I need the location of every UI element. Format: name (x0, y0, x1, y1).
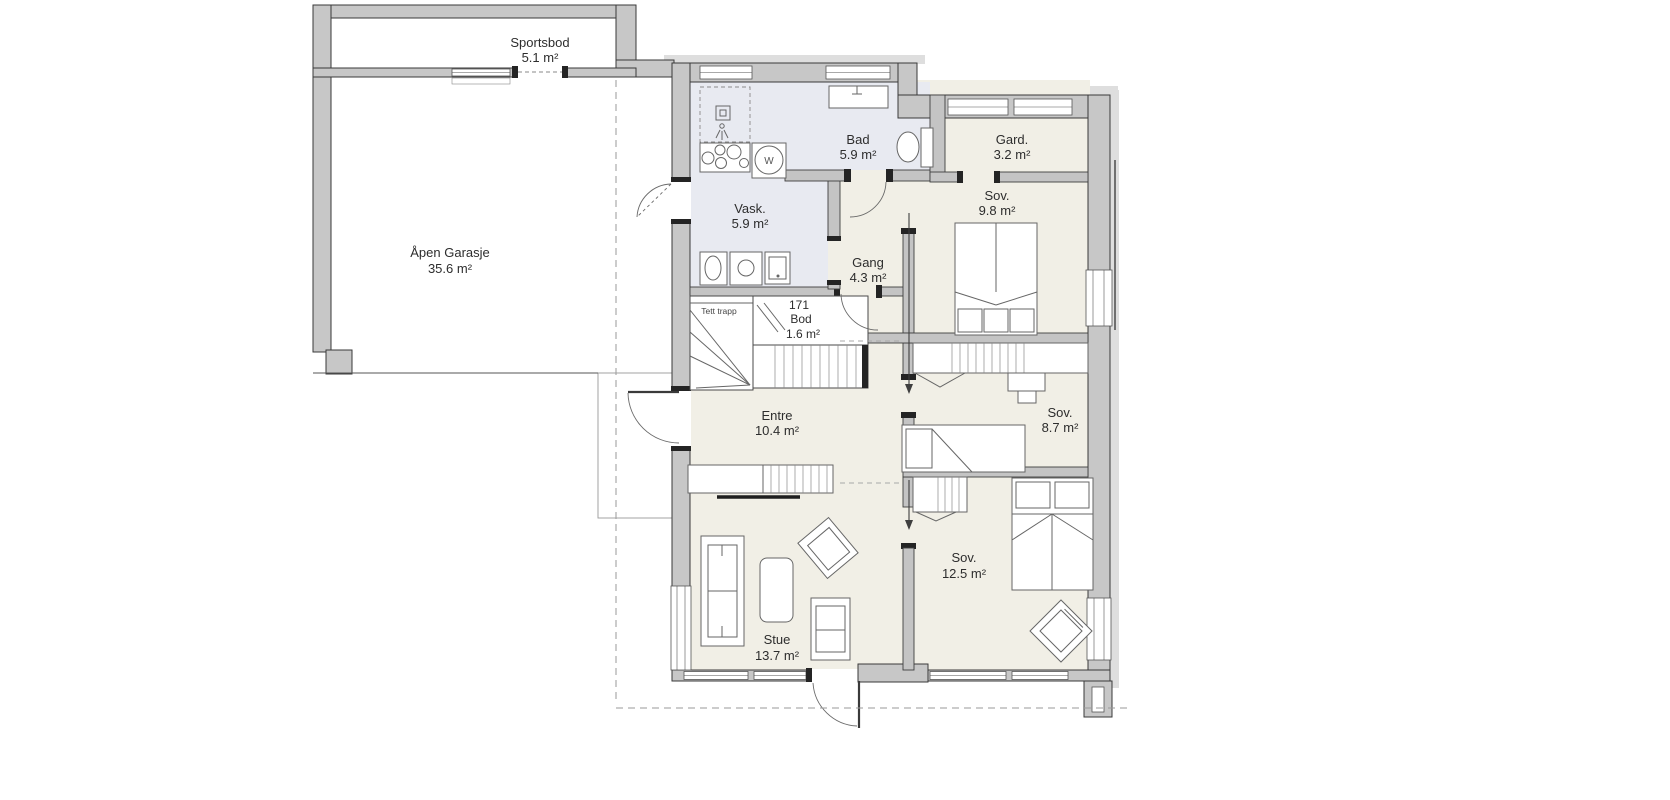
svg-text:5.9 m²: 5.9 m² (732, 216, 770, 231)
garage-corner-pillar (326, 350, 352, 374)
svg-text:Entre: Entre (761, 408, 792, 423)
garage-west-wall (313, 77, 331, 352)
sportsbod-west-wall (313, 5, 331, 77)
room-label-gang: Gang 4.3 m² (850, 255, 888, 285)
svg-text:12.5 m²: 12.5 m² (942, 566, 987, 581)
sofa-icon (701, 536, 744, 646)
svg-text:Stue: Stue (764, 632, 791, 647)
south-wall-pier (858, 664, 928, 682)
desk-icon (1008, 373, 1045, 391)
garage-workbench (452, 78, 510, 84)
west-wall (672, 63, 690, 672)
svg-text:Bad: Bad (846, 132, 869, 147)
divider-wall-lower (903, 548, 914, 670)
window-sov1-east (1086, 270, 1112, 326)
garage-door-opening (671, 181, 691, 220)
svg-text:Sov.: Sov. (1047, 405, 1072, 420)
double-bed-sov1-icon (955, 223, 1037, 335)
svg-text:Åpen Garasje: Åpen Garasje (410, 245, 490, 260)
coffee-table-icon (760, 558, 793, 622)
double-bed-sov3-icon (1012, 478, 1093, 590)
svg-text:4.3 m²: 4.3 m² (850, 270, 888, 285)
sportsbod-door-opening (516, 67, 564, 78)
floorplan-page: W (0, 0, 1670, 800)
floor-sportsbod (331, 18, 616, 68)
exterior-door-opening (808, 669, 860, 682)
single-bed-sov2-icon (902, 425, 1025, 472)
sportsbod-north-wall (313, 5, 636, 18)
svg-text:3.2 m²: 3.2 m² (994, 147, 1032, 162)
svg-text:Sov.: Sov. (951, 550, 976, 565)
entrance-porch (598, 373, 672, 518)
stair-run (753, 345, 868, 388)
floor-garage (331, 77, 616, 372)
gard-south-wall (930, 172, 960, 182)
sink-vask-icon (730, 252, 762, 285)
exterior-door-stue (813, 681, 859, 728)
svg-text:13.7 m²: 13.7 m² (755, 648, 800, 663)
svg-text:171: 171 (789, 298, 809, 312)
svg-text:9.8 m²: 9.8 m² (979, 203, 1017, 218)
front-door-opening (671, 390, 691, 447)
entre-cabinet (688, 465, 833, 493)
svg-text:Gang: Gang (852, 255, 884, 270)
vask-east-wall (828, 178, 840, 240)
washer-letter: W (764, 156, 774, 167)
svg-text:1.6 m²: 1.6 m² (786, 327, 820, 341)
vask-south-wall (690, 287, 838, 296)
room-label-vask: Vask. 5.9 m² (732, 201, 770, 231)
bad-south-wall (785, 170, 846, 181)
svg-text:Sov.: Sov. (984, 188, 1009, 203)
svg-text:10.4 m²: 10.4 m² (755, 423, 800, 438)
floorplan-drawing: W (0, 0, 1670, 800)
bathtub-icon (829, 86, 888, 108)
window-stue-west (671, 586, 691, 670)
chair-stue-icon (811, 598, 850, 660)
svg-text:Sportsbod: Sportsbod (510, 35, 569, 50)
stair-label: Tett trapp (701, 306, 737, 316)
room-label-gard: Gard. 3.2 m² (994, 132, 1032, 162)
svg-text:35.6 m²: 35.6 m² (428, 261, 473, 276)
svg-text:5.1 m²: 5.1 m² (522, 50, 560, 65)
svg-text:8.7 m²: 8.7 m² (1042, 420, 1080, 435)
svg-text:Gard.: Gard. (996, 132, 1029, 147)
svg-text:Vask.: Vask. (734, 201, 766, 216)
svg-text:Bod: Bod (790, 312, 811, 326)
stool-icon (1018, 391, 1036, 403)
svg-text:5.9 m²: 5.9 m² (840, 147, 878, 162)
east-wall (1088, 95, 1110, 681)
sportsbod-east-wall (616, 5, 636, 65)
